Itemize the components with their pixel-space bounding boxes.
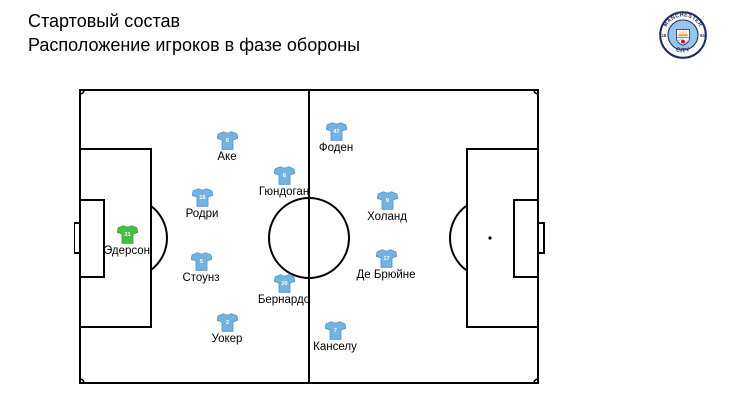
jersey-icon: 7 [325, 321, 346, 340]
player-name-label: Фоден [294, 142, 378, 155]
player-name-label: Родри [160, 208, 244, 221]
player-31: 31Эдерсон [85, 225, 169, 258]
player-name-label: Стоунз [159, 272, 243, 285]
player-name-label: Де Брюйне [344, 269, 428, 282]
jersey-icon: 2 [217, 313, 238, 332]
player-name-label: Канселу [293, 341, 377, 354]
jersey-number: 17 [383, 256, 389, 262]
jersey-number: 7 [333, 328, 336, 334]
players-layer: 31Эдерсон2Уокер5Стоунз6Аке16Родри8Гюндог… [0, 0, 730, 408]
jersey-number: 20 [281, 281, 287, 287]
player-7: 7Канселу [293, 321, 377, 354]
player-17: 17Де Брюйне [344, 249, 428, 282]
player-8: 8Гюндоган [242, 166, 326, 199]
player-16: 16Родри [160, 188, 244, 221]
player-9: 9Холанд [345, 191, 429, 224]
player-name-label: Гюндоган [242, 186, 326, 199]
jersey-icon: 8 [274, 166, 295, 185]
player-name-label: Эдерсон [85, 245, 169, 258]
jersey-number: 31 [124, 232, 130, 238]
jersey-number: 47 [333, 129, 339, 135]
jersey-icon: 16 [192, 188, 213, 207]
jersey-icon: 6 [217, 131, 238, 150]
player-name-label: Уокер [185, 333, 269, 346]
jersey-icon: 31 [117, 225, 138, 244]
jersey-icon: 5 [191, 252, 212, 271]
jersey-icon: 9 [377, 191, 398, 210]
player-47: 47Фоден [294, 122, 378, 155]
jersey-number: 5 [199, 259, 202, 265]
jersey-number: 16 [199, 195, 205, 201]
jersey-number: 9 [385, 198, 388, 204]
jersey-icon: 47 [326, 122, 347, 141]
player-name-label: Холанд [345, 211, 429, 224]
player-name-label: Аке [185, 151, 269, 164]
jersey-number: 2 [225, 320, 228, 326]
player-2: 2Уокер [185, 313, 269, 346]
jersey-number: 8 [282, 173, 285, 179]
player-5: 5Стоунз [159, 252, 243, 285]
jersey-icon: 17 [376, 249, 397, 268]
player-name-label: Бернардо [242, 294, 326, 307]
player-20: 20Бернардо [242, 274, 326, 307]
jersey-icon: 20 [274, 274, 295, 293]
jersey-number: 6 [225, 138, 228, 144]
player-6: 6Аке [185, 131, 269, 164]
